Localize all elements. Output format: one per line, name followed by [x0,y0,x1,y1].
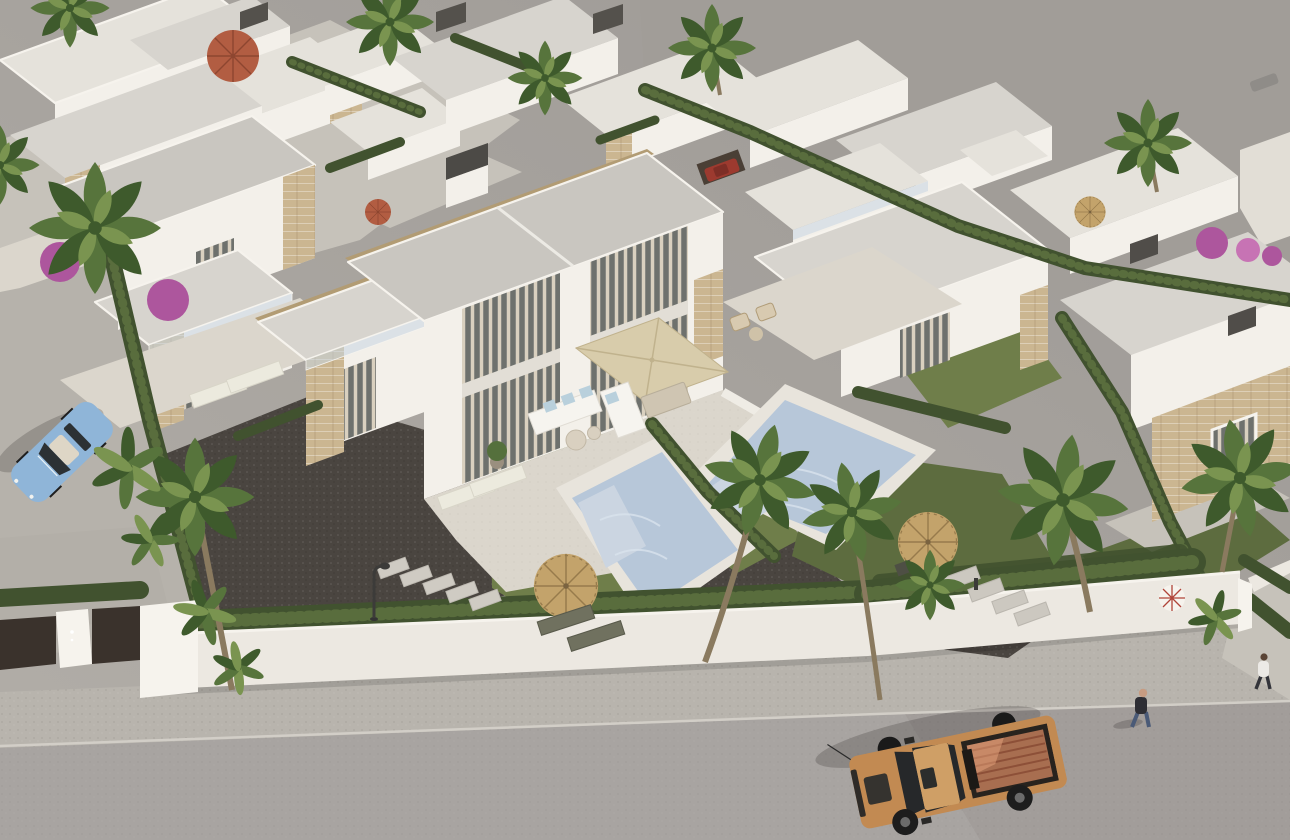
torso [1135,697,1147,714]
gate-pillar [56,609,92,668]
white-umbrella [1159,585,1185,611]
gate-panel-left [0,616,56,670]
straw-umbrella-small [1074,196,1105,227]
head [1260,653,1267,660]
gate-hedge [0,590,140,598]
gate-panel-right [92,606,140,664]
coffee-table [566,430,586,450]
bougainvillea [1196,227,1228,259]
lamp-head [380,563,390,570]
potted-plant [487,441,507,461]
red-umbrella [207,30,259,82]
torso [1258,661,1269,677]
fan-palm [29,162,161,294]
red-umbrella-small [365,199,391,225]
wall-end-cap [1238,578,1252,632]
stone-accent [1020,285,1048,370]
render-canvas [0,0,1290,840]
stone-accent [283,165,315,270]
aerial-villa-render [0,0,1290,840]
bollard-light [974,578,978,590]
coffee-table [588,427,601,440]
side-table [749,327,763,341]
head [1139,689,1147,697]
